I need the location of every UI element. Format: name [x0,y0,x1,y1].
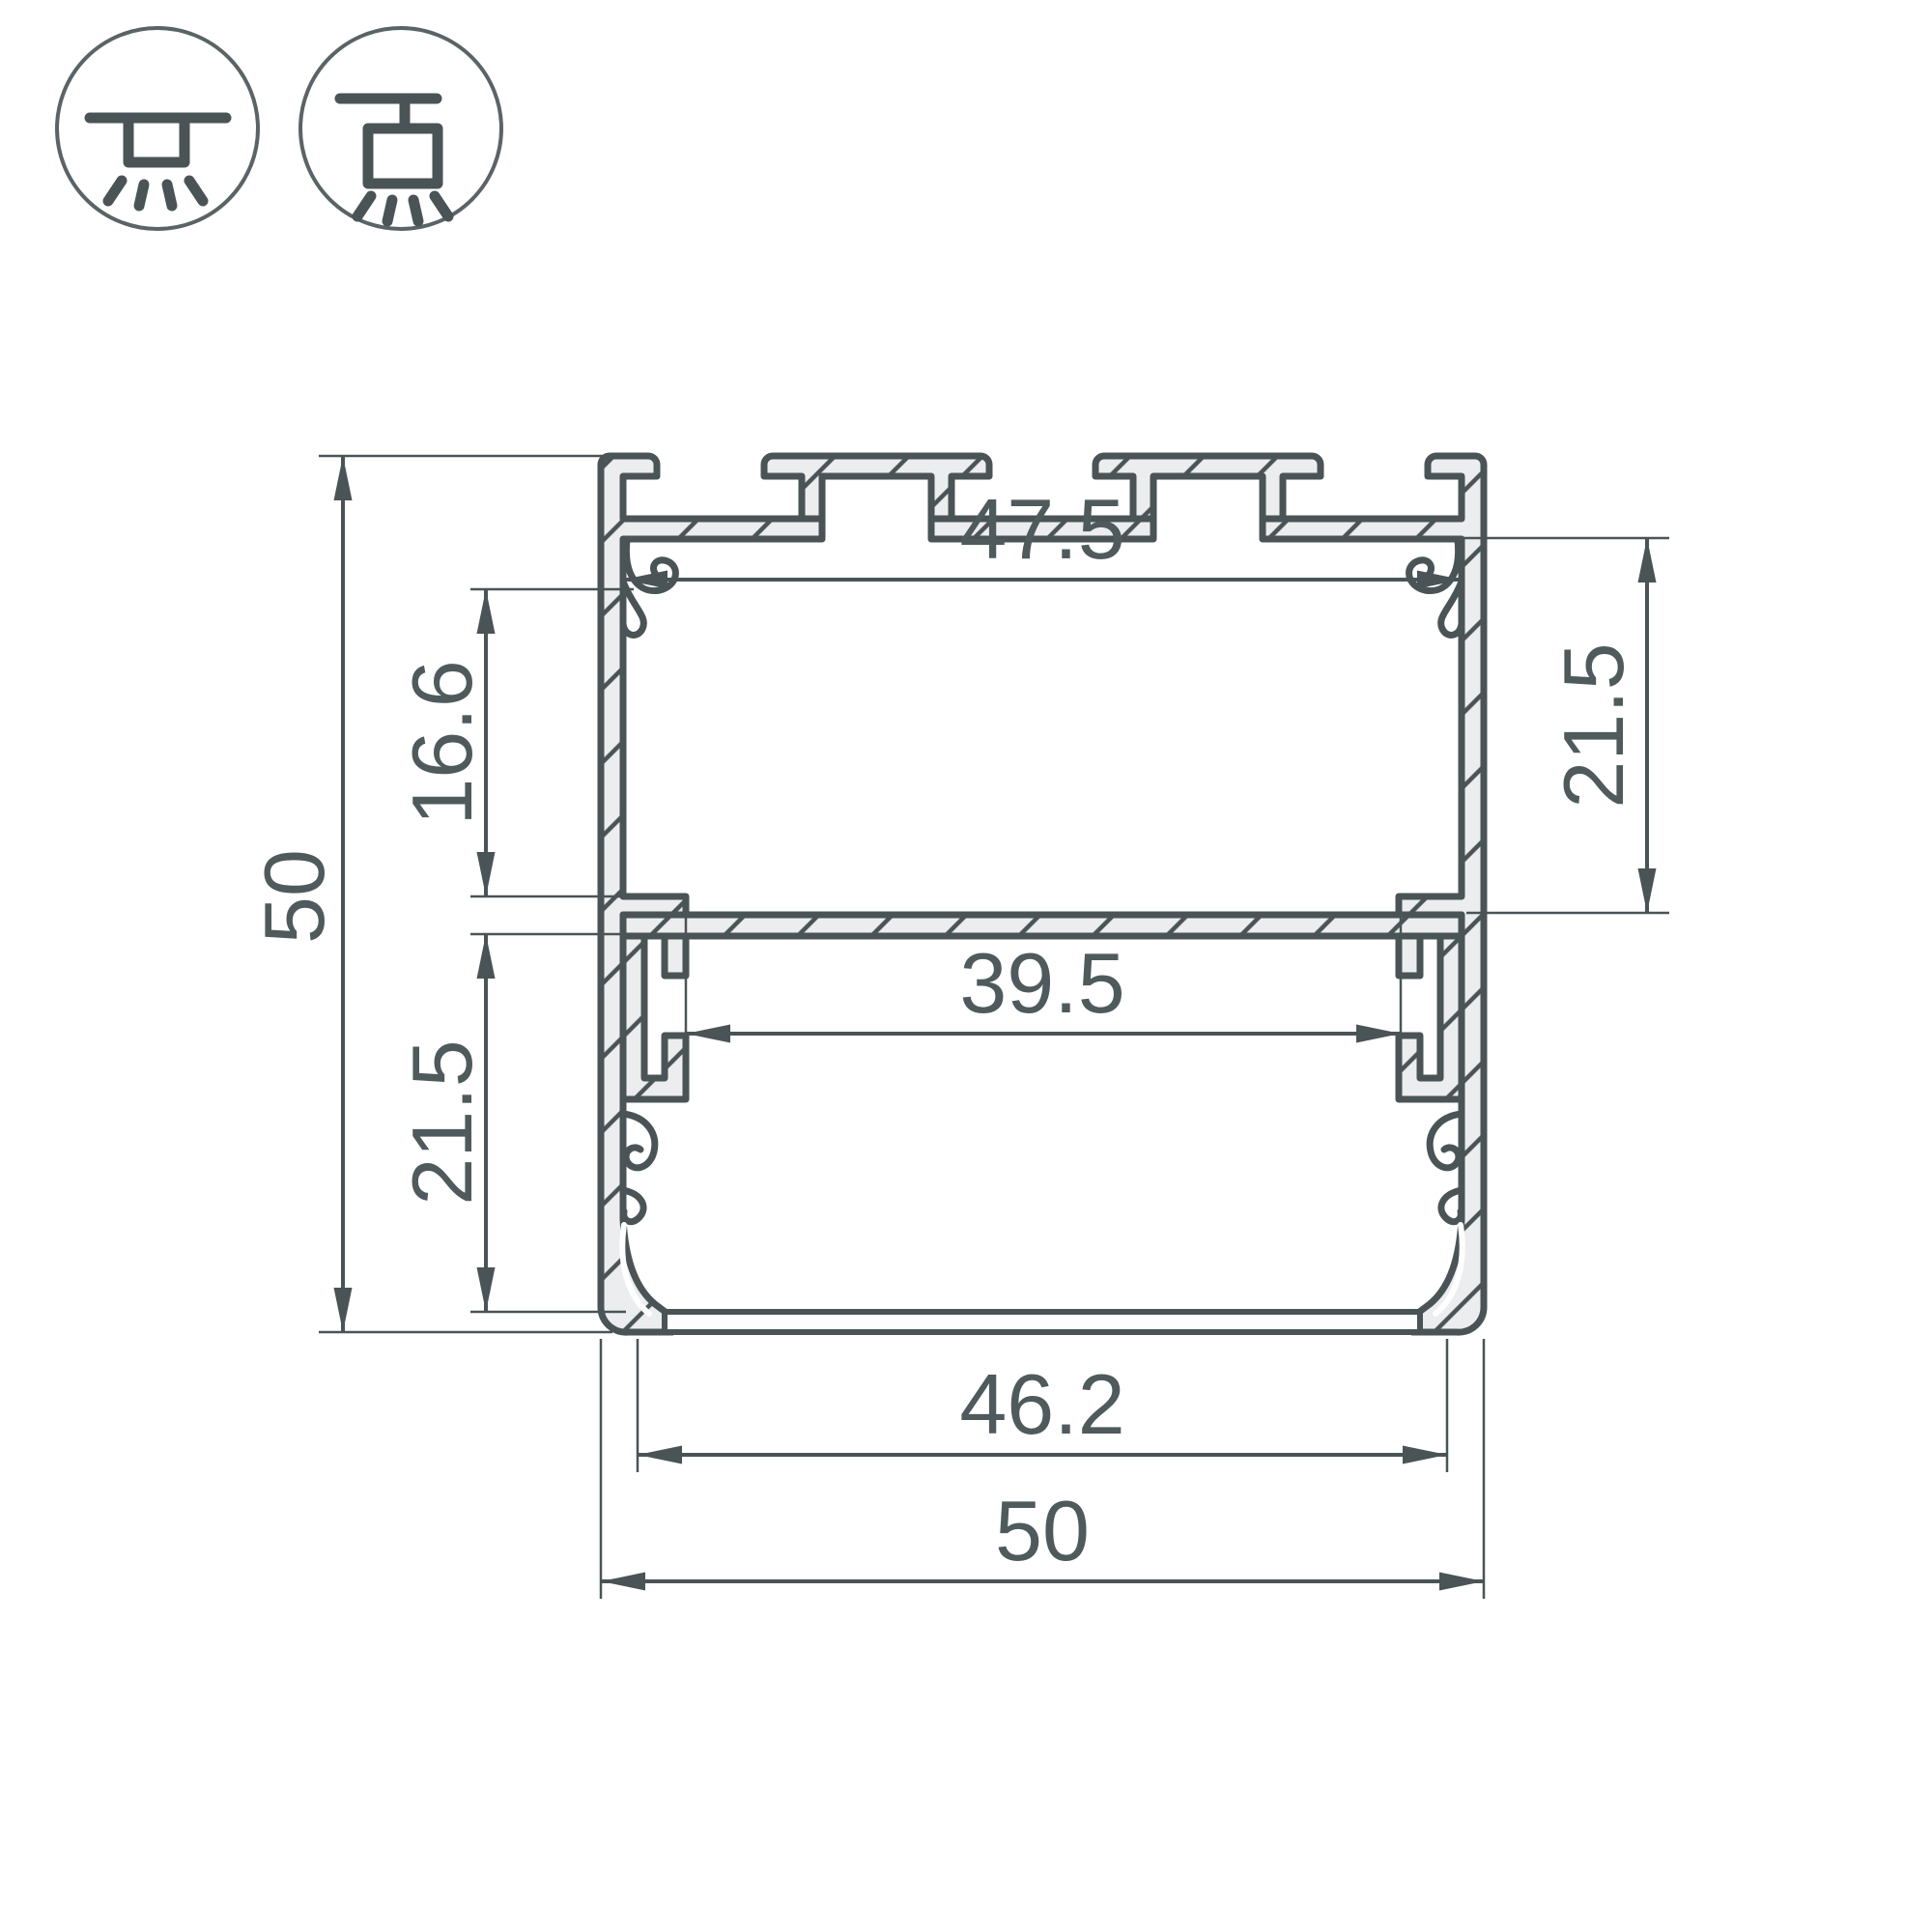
spring-hook-left [626,540,675,591]
dim-label-upper-chamber-height: 21.5 [1546,642,1641,808]
profile-mid-shelf [623,915,1462,936]
dim-label-upper-inner-width: 47.5 [959,481,1124,577]
dim-label-total-width: 50 [995,1483,1090,1578]
profile-body [601,456,1484,1332]
profile-shelf-lip-right [1399,936,1420,976]
light-ray-icon [357,196,371,216]
light-ray-icon [387,200,392,221]
lower-clip-right [1430,1114,1462,1168]
profile-wall-left [601,456,822,1332]
light-ray-icon [435,196,448,216]
light-ray-icon [108,181,122,201]
fixture-box-icon [368,128,438,184]
light-ray-icon [139,185,144,206]
profile-top-tab-left [764,456,989,519]
profile-top-tab-right [1095,456,1321,519]
dim-label-lower-chamber-height: 21.5 [394,1039,490,1205]
dimension-upper-chamber-height: 21.5 [1457,538,1669,913]
lower-clip-left [623,1114,655,1168]
profile-bottom-plate [665,1312,1420,1332]
mounting-icons [57,28,501,229]
dimension-bottom-inner-width: 46.2 [638,1339,1447,1472]
profile-cross-section-drawing: 50 16.6 21.5 21.5 47.5 39.5 46.2 [0,0,1932,1932]
profile-shelf-lip-left [665,936,686,976]
dim-label-bottom-inner-width: 46.2 [959,1356,1124,1452]
dim-label-led-platform-width: 39.5 [959,935,1124,1031]
spring-hook-right [1409,540,1459,591]
drawing-canvas: 50 16.6 21.5 21.5 47.5 39.5 46.2 [0,0,1932,1932]
dim-label-top-chamber-offset: 16.6 [394,660,490,825]
light-ray-icon [189,181,203,201]
pendant-mount-icon [300,28,501,229]
surface-mount-icon [57,28,258,229]
fixture-box-icon [128,118,185,162]
profile-wall-right [1263,456,1484,1332]
light-ray-icon [413,200,418,221]
light-ray-icon [167,185,172,206]
surface-mount-icon-circle [57,28,258,229]
dim-label-total-height: 50 [246,849,342,944]
